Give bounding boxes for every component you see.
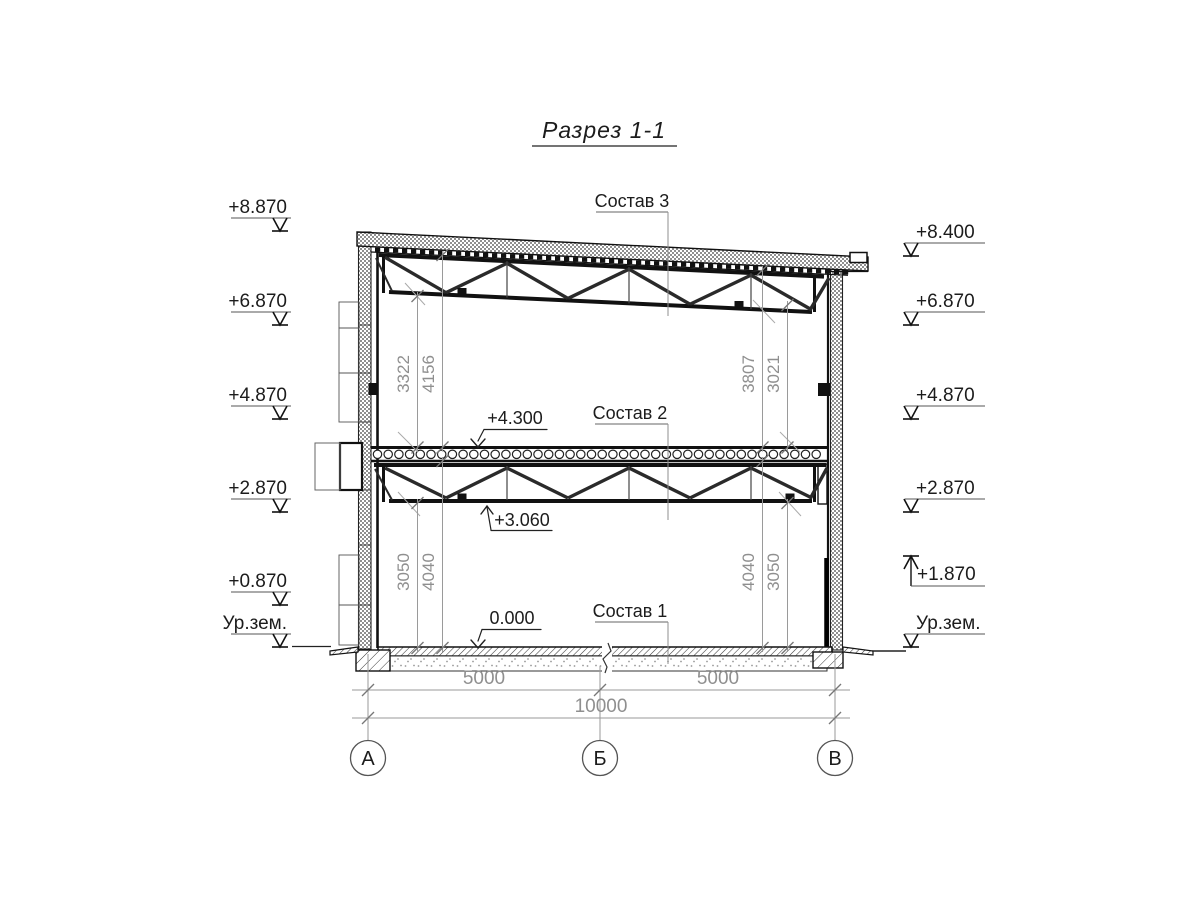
elevation-mark-right-text: Ур.зем. bbox=[916, 613, 980, 634]
elevation-mark-left-4: +0.870 bbox=[228, 571, 291, 605]
elevation-mark-left-text: +8.870 bbox=[228, 197, 287, 218]
elevation-mark-right-0: +8.400 bbox=[903, 222, 985, 256]
elevation-mark-right-4: +1.870 bbox=[903, 556, 985, 586]
left-foundation bbox=[356, 650, 390, 671]
mid-truss bbox=[374, 464, 827, 503]
roof-edge-flashing bbox=[850, 253, 867, 263]
elevation-marks-left: +8.870+6.870+4.870+2.870+0.870Ур.зем. bbox=[223, 197, 291, 647]
axis-bubble-v: В bbox=[818, 741, 853, 776]
dim-5000-left: 5000 bbox=[463, 668, 505, 689]
layer-3-text: Состав 3 bbox=[595, 191, 670, 211]
ground-floor bbox=[292, 643, 906, 673]
mark-slab-top-text: +4.300 bbox=[487, 408, 543, 428]
elevation-mark-left-text: +0.870 bbox=[228, 571, 287, 592]
axis-bubbles: А Б В bbox=[351, 741, 853, 776]
elevation-mark-right-3: +2.870 bbox=[903, 478, 985, 512]
dim-4040-left: 4040 bbox=[419, 553, 438, 591]
dim-3050-right: 3050 bbox=[764, 553, 783, 591]
roof bbox=[357, 232, 868, 275]
elevation-mark-left-text: +2.870 bbox=[228, 478, 287, 499]
layer-1-text: Состав 1 bbox=[593, 601, 668, 621]
axis-v-label: В bbox=[828, 748, 841, 770]
roof-truss-bottom-chord bbox=[389, 292, 812, 312]
right-wall-embed-plate bbox=[818, 383, 830, 396]
section-1-1-drawing: Разрез 1-1 bbox=[0, 0, 1200, 900]
dim-4156: 4156 bbox=[419, 355, 438, 393]
elevation-marks-right: +8.400+6.870+4.870+2.870+1.870Ур.зем. bbox=[903, 222, 985, 647]
elevation-mark-right-text: +6.870 bbox=[916, 291, 975, 312]
left-wall bbox=[315, 232, 379, 649]
drawing-title: Разрез 1-1 bbox=[532, 117, 677, 146]
elevation-mark-left-5: Ур.зем. bbox=[223, 613, 291, 647]
mark-slab-top: +4.300 bbox=[471, 408, 547, 447]
elevation-mark-right-text: +4.870 bbox=[916, 385, 975, 406]
dim-5000-right: 5000 bbox=[697, 668, 739, 689]
elevation-mark-right-text: +2.870 bbox=[916, 478, 975, 499]
slab-hollow-cores bbox=[373, 450, 820, 458]
elevation-mark-left-text: +6.870 bbox=[228, 291, 287, 312]
axis-bubble-a: А bbox=[351, 741, 386, 776]
dim-3050-left: 3050 bbox=[394, 553, 413, 591]
drawing-sheet: Разрез 1-1 bbox=[0, 0, 1200, 900]
axis-a-label: А bbox=[361, 748, 375, 770]
right-wall bbox=[818, 268, 843, 650]
dim-3807: 3807 bbox=[739, 355, 758, 393]
title-text: Разрез 1-1 bbox=[542, 117, 666, 143]
elevation-mark-left-2: +4.870 bbox=[228, 385, 291, 419]
mark-floor-zero-text: 0.000 bbox=[489, 608, 534, 628]
mark-floor-zero: 0.000 bbox=[471, 608, 541, 648]
elevation-mark-left-3: +2.870 bbox=[228, 478, 291, 512]
elevation-mark-right-text: +1.870 bbox=[917, 564, 976, 585]
layer-2-text: Состав 2 bbox=[593, 403, 668, 423]
elevation-mark-left-text: +4.870 bbox=[228, 385, 287, 406]
axis-b-label: Б bbox=[593, 748, 606, 770]
elevation-mark-right-text: +8.400 bbox=[916, 222, 975, 243]
left-apron bbox=[330, 647, 358, 655]
inner-elevation-marks: +4.300 +3.060 0.000 bbox=[471, 408, 552, 648]
right-foundation bbox=[813, 652, 843, 668]
axis-bubble-b: Б bbox=[583, 741, 618, 776]
elevation-mark-left-0: +8.870 bbox=[228, 197, 291, 231]
dim-4040-right: 4040 bbox=[739, 553, 758, 591]
elevation-mark-right-1: +6.870 bbox=[903, 291, 985, 325]
mark-truss-chord: +3.060 bbox=[481, 506, 552, 531]
mark-truss-chord-text: +3.060 bbox=[494, 510, 550, 530]
elevation-mark-right-5: Ур.зем. bbox=[903, 613, 985, 647]
dim-3322: 3322 bbox=[394, 355, 413, 393]
right-apron bbox=[843, 647, 873, 655]
elevation-mark-right-2: +4.870 bbox=[903, 385, 985, 419]
elevation-mark-left-1: +6.870 bbox=[228, 291, 291, 325]
elevation-mark-left-text: Ур.зем. bbox=[223, 613, 287, 634]
dim-10000: 10000 bbox=[575, 696, 628, 717]
left-corbel bbox=[340, 443, 362, 490]
mid-truss-web bbox=[385, 466, 812, 500]
left-wall-embed-plate bbox=[369, 383, 379, 395]
dim-3021: 3021 bbox=[764, 355, 783, 393]
